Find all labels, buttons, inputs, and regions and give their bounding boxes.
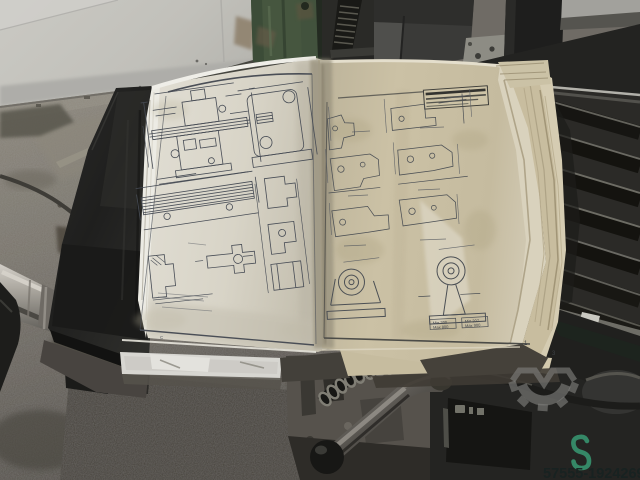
svg-text:Max 800: Max 800 (433, 324, 449, 330)
svg-text:57555-19242692: 57555-19242692 (543, 466, 640, 480)
svg-text:Max 900: Max 900 (465, 322, 481, 328)
